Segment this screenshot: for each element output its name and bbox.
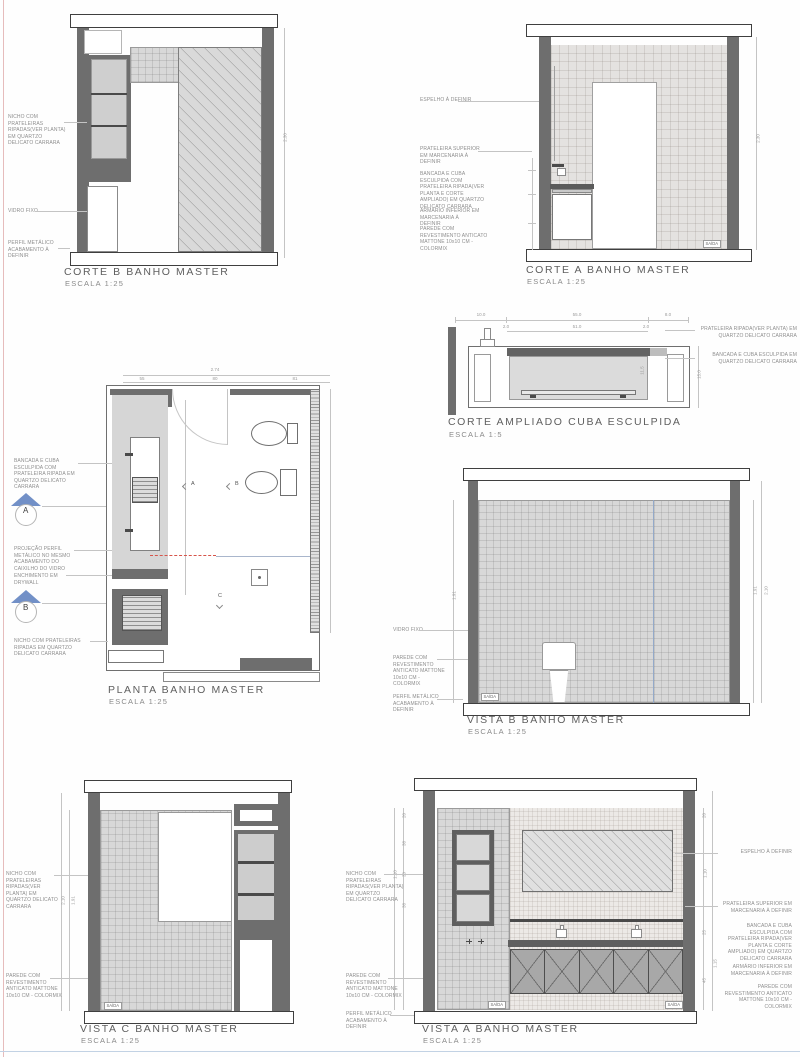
basin-lip — [552, 189, 592, 193]
section-line — [42, 506, 106, 507]
annotation-shelf: PRATELEIRA RIPADA(VER PLANTA) EM QUARTZO… — [695, 326, 797, 339]
upper-shelf-line — [510, 919, 683, 922]
glass-projection-line — [185, 400, 186, 595]
shelf-foot — [620, 395, 626, 398]
floor-slab — [70, 252, 278, 266]
section-line — [42, 603, 106, 604]
upper-frame-fill — [240, 810, 272, 821]
leader-line — [437, 699, 463, 700]
annotation-mirror: ESPELHO À DEFINIR — [720, 849, 792, 856]
ceiling-slab — [463, 468, 750, 481]
leader-line — [478, 151, 532, 152]
right-wall — [278, 793, 290, 1011]
dim-tick — [455, 317, 456, 323]
panel-vista-c: SAÍDA 1.91 2.10 NICHO COM PRATELEIRAS RI… — [0, 773, 322, 1057]
annotation-countertop: BANCADA E CUBA ESCULPIDA COM PRATELEIRA … — [420, 171, 488, 211]
wall-strip — [448, 327, 456, 415]
panel-vista-a: SAÍDA SAÍDA 20 38 30 38 1.10 20 1.10 25 … — [340, 773, 800, 1057]
toilet-tank — [280, 469, 297, 496]
niche-frame — [452, 830, 494, 926]
dim-label: 2.0 — [638, 324, 654, 329]
dim-label: 1.91 — [71, 890, 76, 912]
niche-shelf-box — [456, 834, 490, 861]
exit-label: SAÍDA — [703, 240, 721, 248]
faucet — [125, 529, 133, 532]
panel-planta: 2.74 55 80 81 A B C A B BANCADA E CUBA E… — [0, 363, 345, 713]
niche-fill — [91, 59, 127, 159]
leader-line — [74, 550, 112, 551]
dim-label: 81 — [285, 376, 305, 381]
leader-line — [665, 358, 695, 359]
dim-label: 25 — [702, 924, 707, 942]
mirror-edge — [554, 66, 555, 161]
dim-line-right — [712, 791, 713, 1011]
leader-line — [54, 875, 88, 876]
leader-line — [685, 906, 718, 907]
ceiling-slab — [84, 780, 292, 793]
glass-line-red-dashed — [150, 555, 216, 556]
countertop — [508, 940, 683, 947]
right-wall — [727, 37, 739, 250]
cabinet-door — [614, 950, 648, 993]
annotation-cabinet: ARMÁRIO INFERIOR EM MARCENARIA À DEFINIR — [720, 964, 792, 977]
dim-line-right — [753, 500, 754, 703]
dim-label: 10.0 — [466, 312, 496, 317]
cabinet-door — [649, 950, 682, 993]
counter-slatted-shelf — [132, 477, 158, 503]
panel-vista-b: SAÍDA 1.91 1.91 2.10 VIDRO FIXO PAREDE C… — [385, 463, 798, 735]
leader-line — [66, 575, 112, 576]
exit-label: SAÍDA — [481, 693, 499, 701]
view-marker-c: C — [218, 593, 222, 599]
annotation-profile: PROJEÇÃO PERFIL METÁLICO NO MESMO ACABAM… — [14, 546, 78, 572]
dim-label: 38 — [402, 835, 407, 853]
bidet-deck — [287, 423, 298, 444]
top-wall-right — [230, 389, 310, 395]
annotation-shelf: PRATELEIRA SUPERIOR EM MARCENARIA À DEFI… — [720, 901, 792, 914]
leader-line — [64, 122, 87, 123]
ceiling-slab — [70, 14, 278, 28]
dim-label: 55.0 — [557, 312, 597, 317]
floor-drain-dot — [258, 576, 261, 579]
door-opening — [592, 82, 657, 249]
dim-label: 2.0 — [498, 324, 514, 329]
exit-label: SAÍDA — [104, 1002, 122, 1010]
dim-line-right — [761, 481, 762, 703]
annotation-countertop: BANCADA E CUBA ESCULPIDA EM QUARTZO DELI… — [695, 352, 797, 365]
fixed-glass-door — [87, 186, 118, 252]
leader-line — [50, 978, 88, 979]
left-profile — [474, 354, 491, 402]
faucet — [631, 929, 642, 938]
drawing-scale: ESCALA 1:25 — [527, 277, 586, 286]
dim-label: 45 — [702, 972, 707, 990]
dim-label-height: 15.0 — [697, 365, 702, 385]
section-marker-a: A — [10, 493, 42, 537]
drawing-scale: ESCALA 1:5 — [449, 430, 503, 439]
niche-shelf — [238, 893, 274, 896]
countertop-slab — [507, 348, 650, 356]
niche-lower-band — [112, 637, 168, 645]
glass-edge-line — [653, 500, 654, 703]
dim-label: 1.15 — [713, 954, 718, 974]
shower-control — [469, 939, 470, 944]
section-marker-b: B — [10, 590, 42, 634]
dim-line-right — [330, 389, 331, 633]
dim-tick — [528, 194, 536, 195]
dim-tick — [506, 317, 507, 323]
drawing-title: CORTE B BANHO MASTER — [64, 266, 229, 278]
left-wall — [468, 481, 478, 703]
section-marker-letter: B — [23, 603, 28, 612]
dim-line-inner — [507, 331, 648, 332]
dim-label-basin: 11.5 — [640, 361, 645, 381]
dim-label: 8.0 — [653, 312, 683, 317]
annotation-wall-tile: PAREDE COM REVESTIMENTO ANTICATO MATTONE… — [393, 655, 445, 688]
drawing-scale: ESCALA 1:25 — [468, 727, 527, 736]
leader-line — [35, 211, 87, 212]
right-wall — [262, 28, 274, 258]
dim-tick — [528, 170, 536, 171]
door-leaf — [227, 389, 228, 445]
leader-line — [58, 248, 70, 249]
ceiling-slab — [414, 778, 697, 791]
niche-shelf-box — [456, 894, 490, 922]
leader-line — [437, 659, 468, 660]
tiled-wall — [478, 500, 730, 703]
annotation-wall-tile-right: PAREDE COM REVESTIMENTO ANTICATO MATTONE… — [720, 984, 792, 1010]
door-frame — [234, 932, 278, 1011]
annotation-countertop: BANCADA E CUBA ESCULPIDA COM PRATELEIRA … — [14, 458, 84, 491]
annotation-profile: PERFIL METÁLICO ACABAMENTO À DEFINIR — [393, 694, 445, 714]
right-wall — [683, 791, 695, 1011]
niche-fill — [238, 834, 274, 920]
niche-shelf — [91, 93, 127, 95]
dim-line-top2 — [123, 382, 330, 383]
annotation-niche: NICHO COM PRATELEIRAS RIPADAS EM QUARTZO… — [14, 638, 92, 658]
dim-label-total: 2.74 — [200, 367, 230, 372]
annotation-wall-tile: PAREDE COM REVESTIMENTO ANTICATO MATTONE… — [346, 973, 404, 999]
toilet-tank — [542, 642, 576, 670]
slatted-shelf — [521, 390, 636, 395]
cabinet-door — [511, 950, 545, 993]
leader-line — [388, 978, 423, 979]
drawing-scale: ESCALA 1:25 — [423, 1036, 482, 1045]
right-wall-tiled — [310, 389, 320, 633]
leader-line — [390, 1015, 414, 1016]
leader-line — [90, 641, 108, 642]
right-wall — [730, 481, 740, 703]
annotation-profile: PERFIL METÁLICO ACABAMENTO À DEFINIR — [8, 240, 66, 260]
niche-shelf — [91, 125, 127, 127]
drawing-title: CORTE AMPLIADO CUBA ESCULPIDA — [448, 416, 682, 428]
annotation-wall-tile: PAREDE COM REVESTIMENTO ANTICATO MATTONE… — [420, 226, 488, 252]
left-wall — [423, 791, 435, 1011]
leader-line — [78, 463, 112, 464]
drawing-title: PLANTA BANHO MASTER — [108, 684, 265, 696]
mirror — [522, 830, 673, 892]
dim-line-left — [532, 158, 533, 250]
view-marker-a: A — [191, 481, 195, 487]
leader-line — [665, 330, 695, 331]
tiled-strip — [130, 47, 180, 83]
niche-shelf-box — [456, 864, 490, 891]
dim-label-height: 2.30 — [283, 127, 288, 149]
door-fill — [240, 940, 272, 1011]
panel-corte-ampliado: 10.0 55.0 8.0 2.0 51.0 2.0 15.0 11.5 PRA… — [440, 310, 798, 445]
left-wall — [88, 793, 100, 1011]
cabinet-door — [580, 950, 614, 993]
drawing-title: CORTE A BANHO MASTER — [526, 264, 690, 276]
exit-label: SAÍDA — [488, 1001, 506, 1009]
dim-label: 1.91 — [452, 585, 457, 607]
drywall-fill — [112, 569, 168, 579]
leader-line — [675, 853, 718, 854]
dim-label: 51.0 — [562, 324, 592, 329]
drawing-scale: ESCALA 1:25 — [81, 1036, 140, 1045]
annotation-shelf: PRATELEIRA SUPERIOR EM MARCENARIA À DEFI… — [420, 146, 480, 166]
panel-corte-b: 2.30 NICHO COM PRATELEIRAS RIPADAS(VER P… — [8, 10, 303, 288]
drawing-scale: ESCALA 1:25 — [65, 279, 124, 288]
shelf-tick — [552, 164, 564, 167]
annotation-niche: NICHO COM PRATELEIRAS RIPADAS(VER PLANTA… — [6, 871, 62, 911]
bottom-wall — [240, 658, 312, 671]
annotation-wall-tile: PAREDE COM REVESTIMENTO ANTICATO MATTONE… — [6, 973, 62, 999]
lower-cabinet — [510, 949, 683, 994]
dim-label: 2.10 — [764, 580, 769, 602]
faucet-base — [480, 339, 495, 347]
leader-line — [419, 630, 468, 631]
exit-label: SAÍDA — [665, 1001, 683, 1009]
dim-label: 1.10 — [703, 864, 708, 884]
left-wall — [539, 37, 551, 250]
drawing-title: VISTA A BANHO MASTER — [422, 1023, 579, 1035]
dim-label: 80 — [205, 376, 225, 381]
dim-tick — [528, 223, 536, 224]
panel-corte-a: SAÍDA 2.30 ESPELHO À DEFINIR PRATELEIRA … — [420, 18, 798, 290]
upper-frame — [234, 804, 278, 826]
dim-tick — [688, 317, 689, 323]
upper-recess — [84, 30, 122, 54]
faucet — [556, 929, 567, 938]
annotation-niche: NICHO COM PRATELEIRAS RIPADAS(VER PLANTA… — [8, 114, 68, 147]
dim-line-top — [455, 320, 688, 321]
shower-niche-slats — [122, 595, 162, 631]
lower-cabinet — [552, 194, 592, 240]
drawing-scale: ESCALA 1:25 — [109, 697, 168, 706]
dim-label: 20 — [702, 807, 707, 825]
bidet-plan — [251, 421, 287, 446]
faucet — [125, 453, 133, 456]
faucet — [557, 168, 566, 176]
annotation-profile: PERFIL METÁLICO ACABAMENTO À DEFINIR — [346, 1011, 404, 1031]
shelf-foot — [530, 395, 536, 398]
ceiling-slab — [526, 24, 752, 37]
floor-slab — [526, 249, 752, 262]
right-profile — [667, 354, 684, 402]
dim-tick — [648, 317, 649, 323]
glass-line-blue — [216, 556, 310, 557]
dim-label: 1.91 — [753, 580, 758, 602]
annotation-countertop: BANCADA E CUBA ESCULPIDA COM PRATELEIRA … — [720, 923, 792, 963]
cabinet-door — [545, 950, 579, 993]
dim-label: 20 — [402, 807, 407, 825]
shower-control — [481, 939, 482, 944]
niche-lower-band — [234, 924, 278, 932]
annotation-cabinet: ARMÁRIO INFERIOR EM MARCENARIA À DEFINIR — [420, 208, 480, 228]
leader-line — [458, 101, 539, 102]
niche-frame — [87, 55, 131, 182]
toilet-plan — [245, 471, 278, 494]
drawing-title: VISTA C BANHO MASTER — [80, 1023, 238, 1035]
drawing-title: VISTA B BANHO MASTER — [467, 714, 625, 726]
niche-frame — [234, 830, 278, 924]
bottom-bench — [163, 672, 320, 682]
section-marker-letter: A — [23, 506, 28, 515]
lower-niche-box — [108, 650, 164, 663]
leader-line — [384, 874, 423, 875]
shower-hatch-panel — [178, 47, 262, 252]
view-marker-b: B — [235, 481, 239, 487]
dim-label: 55 — [132, 376, 152, 381]
niche-shelf — [238, 861, 274, 864]
dim-label-height: 2.30 — [756, 128, 761, 150]
annotation-niche: NICHO COM PRATELEIRAS RIPADAS(VER PLANTA… — [346, 871, 404, 904]
glass-panel — [158, 812, 232, 922]
countertop-ext — [650, 348, 667, 356]
